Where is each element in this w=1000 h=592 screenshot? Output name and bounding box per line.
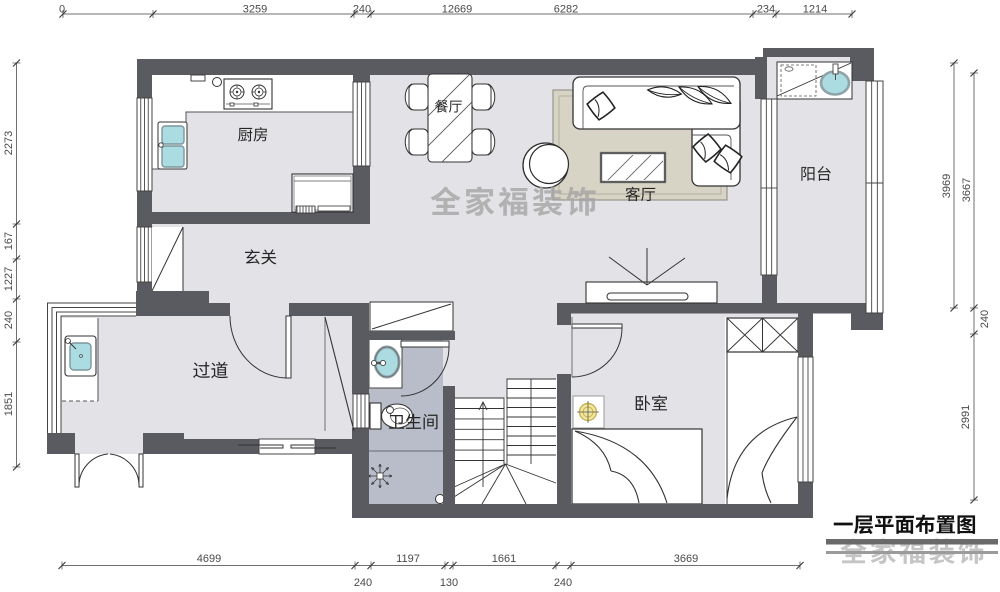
svg-text:2273: 2273 (3, 131, 15, 155)
svg-text:167: 167 (3, 232, 15, 250)
svg-text:1851: 1851 (3, 392, 15, 416)
svg-text:3259: 3259 (243, 4, 267, 16)
svg-text:1214: 1214 (803, 4, 827, 16)
svg-text:240: 240 (354, 577, 372, 587)
svg-text:2991: 2991 (960, 405, 972, 429)
svg-text:1661: 1661 (492, 553, 516, 565)
svg-text:6282: 6282 (554, 4, 578, 16)
svg-text:234: 234 (757, 4, 775, 16)
svg-text:4699: 4699 (197, 553, 221, 565)
svg-text:240: 240 (554, 577, 572, 587)
svg-text:3667: 3667 (961, 178, 973, 202)
svg-text:1197: 1197 (396, 553, 420, 565)
svg-text:1227: 1227 (3, 267, 15, 291)
svg-text:130: 130 (440, 577, 458, 587)
svg-text:3669: 3669 (674, 553, 698, 565)
svg-text:240: 240 (3, 311, 15, 329)
svg-text:0: 0 (59, 4, 65, 16)
svg-text:240: 240 (979, 310, 991, 328)
svg-text:3969: 3969 (941, 174, 953, 198)
svg-text:12669: 12669 (442, 4, 473, 16)
svg-text:240: 240 (353, 4, 371, 16)
